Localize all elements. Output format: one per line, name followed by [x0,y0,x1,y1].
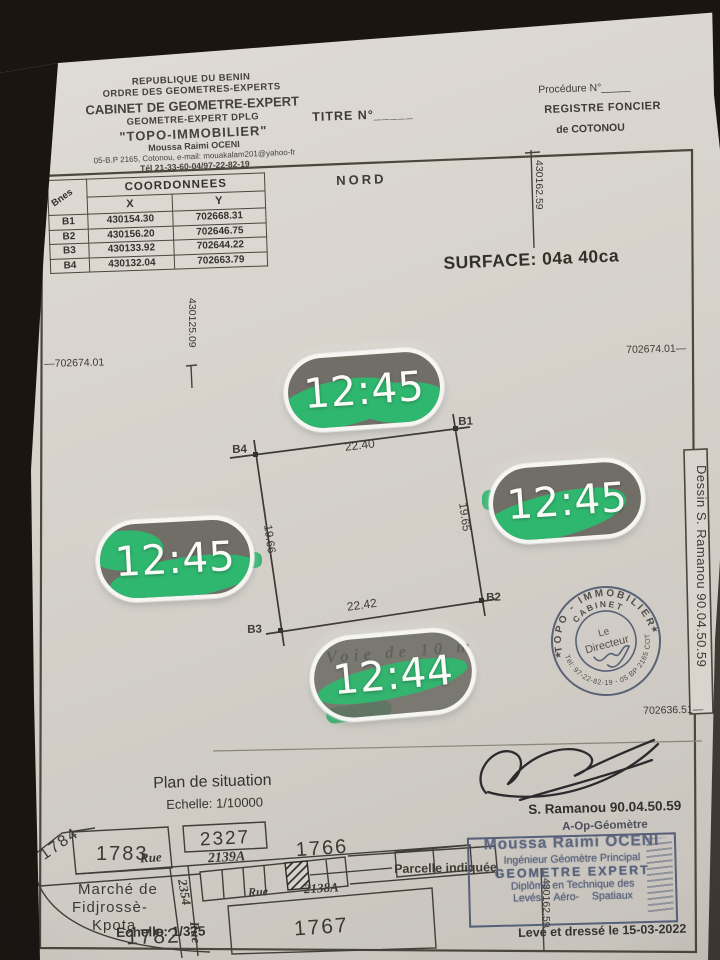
stamp-ring-text: TOPO - IMMOBILIER CABINET Tél: 97-22-82-… [540,576,670,700]
plan-situation-scale: Echelle: 1/10000 [166,794,263,812]
parcelle-leader-line [310,868,392,875]
borne-id: B3 [50,243,89,259]
corner-label-b1: B1 [458,415,473,428]
signature-role: A-Op-Géomètre [562,819,648,833]
axis-tick [191,366,192,388]
coordinate-label-430125: 430125.09 [186,298,198,348]
letterhead: REPUBLIQUE DU BENIN ORDRE DES GEOMETRES-… [46,68,340,178]
expert-stamp-box: Moussa Raimi OCENI Ingénieur Géomètre Pr… [467,832,678,927]
corner-label-b4: B4 [232,443,247,456]
corner-mark-b4 [253,452,258,457]
corner-mark-b2 [479,598,484,603]
corner-label-b2: B2 [486,591,501,604]
timestamp-text: 12:45 [302,362,426,418]
map-label-rue-1: Rue [138,849,162,866]
north-label: NORD [336,171,387,188]
timestamp-text: 12:45 [113,532,236,586]
map-label-marche-2: Fidjrossè- [72,899,148,916]
signature-stroke [480,751,520,793]
coord-x: 430132.04 [89,255,174,272]
coordinate-label-702674-right: 702674.01— [626,342,686,356]
axis-tick [525,152,540,153]
col-bornes-label: Bnes [50,186,75,208]
stamp-hatch-marks [646,837,674,914]
photo-of-survey-plan: { "letterhead": { "line1": "REPUBLIQUE D… [0,0,720,960]
corner-mark-b1 [453,426,458,431]
footer-scale: Echelle: 1/375 [116,923,206,940]
coordinate-label-430162-bottom: 430162.59 [540,878,552,928]
timestamp-overlay-2: 12:45 [486,456,647,547]
plan-situation-title: Plan de situation [153,772,272,793]
axis-tick [186,365,197,366]
borne-id: B4 [50,258,89,274]
map-label-marche-1: Marché de [78,881,158,898]
handwritten-signature [480,740,658,800]
map-label-1766: 1766 [295,836,349,862]
map-label-1784: 1784 [37,825,82,864]
signature-stroke [508,740,654,784]
coord-y: 702663.79 [174,251,267,269]
dessin-box-label: Dessin S. Ramanou 90.04.50.59 [694,465,709,667]
map-label-2139a: 2139A [207,849,246,866]
borne-id: B2 [49,229,88,245]
map-label-rue-2: Rue [247,884,269,899]
registre-ville: de COTONOU [556,122,625,136]
map-label-2354: 2354 [175,877,195,907]
timestamp-overlay-3: 12:45 [94,514,256,604]
coordinate-label-430162-top: 430162.59 [533,160,545,210]
timestamp-overlay-1: 12:45 [281,346,446,435]
map-label-2138a: 2138A [303,879,340,896]
coordinate-label-702674-left: —702674.01 [44,356,104,370]
timestamp-text: 12:44 [331,646,455,704]
corner-label-b3: B3 [247,623,262,636]
coordinate-label-702636: 702636.51— [643,703,703,717]
borne-id: B1 [49,214,88,230]
col-bornes: Bnes [48,179,88,215]
parcel-edge-bottom [266,599,497,634]
coordinates-table: Bnes COORDONNEES X Y B1 430154.30 702668… [47,172,268,274]
map-label-1767: 1767 [293,914,349,941]
signature-stroke [520,760,652,800]
corner-mark-b3 [278,628,283,633]
map-street [30,858,36,878]
timestamp-text: 12:45 [505,473,629,529]
map-label-2327: 2327 [199,827,250,851]
round-stamp: TOPO - IMMOBILIER CABINET Tél: 97-22-82-… [540,575,672,707]
